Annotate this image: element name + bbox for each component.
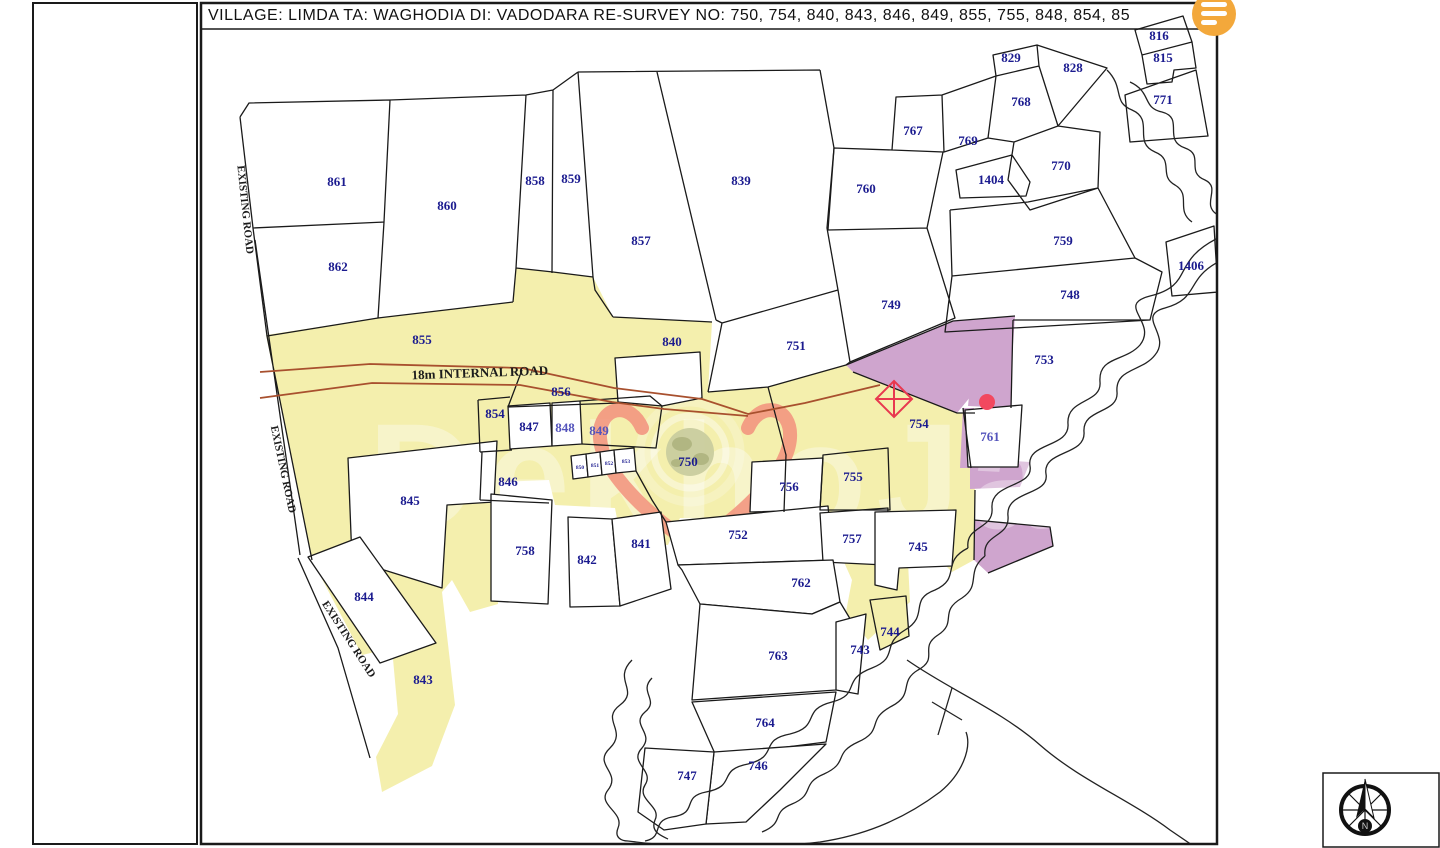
parcel-label-761: 761 [980,429,1000,444]
parcel-label-747: 747 [677,768,697,783]
parcel-label-857: 857 [631,233,651,248]
parcel-label-746: 746 [748,758,768,773]
map-canvas[interactable]: VILLAGE: LIMDA TA: WAGHODIA DI: VADODARA… [0,0,1440,848]
parcel-label-828: 828 [1063,60,1083,75]
parcel-label-767: 767 [903,123,923,138]
parcel-label-744: 744 [880,624,900,639]
parcel-label-763: 763 [768,648,788,663]
parcel-label-856: 856 [551,384,571,399]
parcel-label-842: 842 [577,552,597,567]
parcel-label-845: 845 [400,493,420,508]
parcel-label-829: 829 [1001,50,1021,65]
parcel-label-754: 754 [909,416,929,431]
parcel-label-859: 859 [561,171,581,186]
parcel-label-855: 855 [412,332,432,347]
parcel-label-841: 841 [631,536,651,551]
parcel-label-759: 759 [1053,233,1073,248]
parcel-label-749: 749 [881,297,901,312]
parcel-label-839: 839 [731,173,751,188]
parcel-label-850: 850 [576,465,585,471]
map-title: VILLAGE: LIMDA TA: WAGHODIA DI: VADODARA… [208,7,1130,24]
red-dot-marker-icon [979,394,995,410]
parcel-label-858: 858 [525,173,545,188]
village-survey-map-page: VILLAGE: LIMDA TA: WAGHODIA DI: VADODARA… [0,0,1440,848]
parcel-label-743: 743 [850,642,870,657]
parcel-label-770: 770 [1051,158,1071,173]
parcel-label-860: 860 [437,198,457,213]
parcel-label-844: 844 [354,589,374,604]
compass-box: N [1323,773,1439,847]
parcel-label-750: 750 [678,454,698,469]
parcel-label-849: 849 [589,423,609,438]
parcel-label-757: 757 [842,531,862,546]
parcel-label-769: 769 [958,133,978,148]
parcel-label-816: 816 [1149,28,1169,43]
parcel-label-1404: 1404 [978,172,1005,187]
parcel-label-760: 760 [856,181,876,196]
parcel-label-853: 853 [622,459,631,465]
parcel-label-840: 840 [662,334,682,349]
parcel-label-854: 854 [485,406,505,421]
parcel-label-851: 851 [591,463,600,469]
parcel-label-748: 748 [1060,287,1080,302]
parcel-label-762: 762 [791,575,811,590]
parcel-label-848: 848 [555,420,575,435]
svg-text:N: N [1362,821,1369,831]
parcel-label-815: 815 [1153,50,1173,65]
parcel-label-846: 846 [498,474,518,489]
parcel-label-751: 751 [786,338,806,353]
parcel-label-753: 753 [1034,352,1054,367]
parcel-label-847: 847 [519,419,539,434]
parcel-label-745: 745 [908,539,928,554]
parcel-label-758: 758 [515,543,535,558]
parcel-label-764: 764 [755,715,775,730]
left-blank-panel [33,3,197,844]
parcel-label-861: 861 [327,174,347,189]
parcel-label-771: 771 [1153,92,1173,107]
parcel-label-755: 755 [843,469,863,484]
parcel-label-843: 843 [413,672,433,687]
parcel-label-768: 768 [1011,94,1031,109]
parcel-label-852: 852 [605,461,614,467]
parcel-label-756: 756 [779,479,799,494]
parcel-label-1406: 1406 [1178,258,1205,273]
parcel-label-752: 752 [728,527,748,542]
parcel-label-862: 862 [328,259,348,274]
